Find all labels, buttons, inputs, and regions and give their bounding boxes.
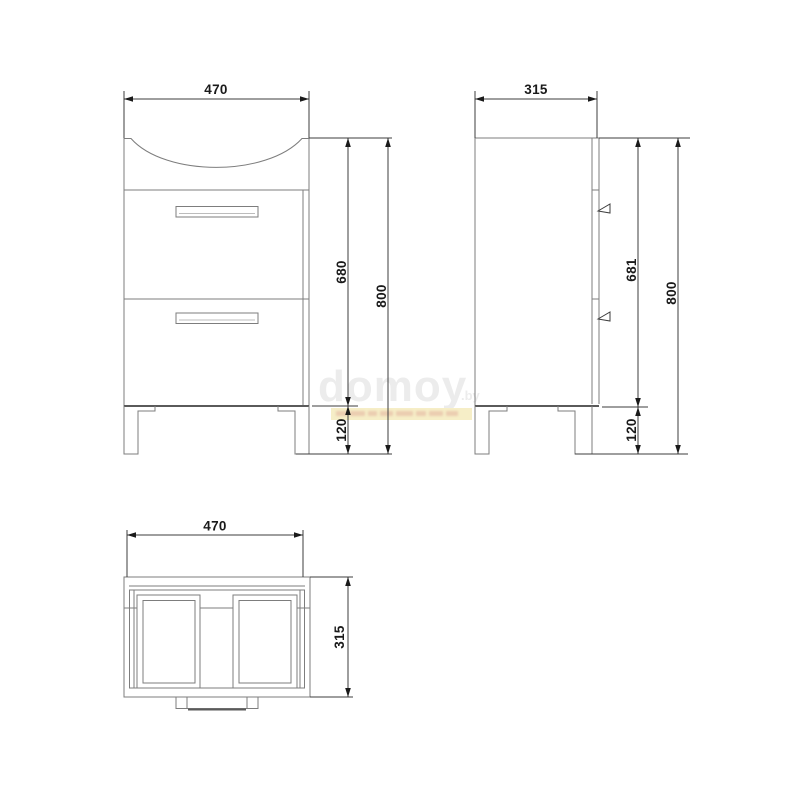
side-total-height-label: 800 [664,281,679,304]
front-width-label: 470 [204,82,227,97]
side-leg-height-label: 120 [624,418,639,441]
top-view: 470 315 [124,519,353,710]
front-body-height-label: 680 [334,260,349,283]
front-drawer1-handle [176,207,258,218]
side-view: 315 681 800 120 [475,82,690,454]
side-depth-label: 315 [524,82,548,97]
drawer2-opening-direction-marker [598,312,610,321]
front-carcass-lines [124,138,309,406]
front-total-height-label: 800 [374,284,389,307]
side-back-leg [558,406,592,454]
front-leg-height-label: 120 [334,418,349,441]
side-dimension-arrows [475,96,681,454]
side-dimension-lines [475,99,678,454]
top-width-label: 470 [203,519,226,534]
front-top-curved-edge [124,139,309,168]
drawer1-opening-direction-marker [598,204,610,213]
technical-drawing-page: domoy .by 470 680 [0,0,800,800]
top-depth-label: 315 [332,625,347,649]
top-left-drawer-frame [137,595,200,688]
side-body-height-label: 681 [624,258,639,282]
top-front-tab [176,697,258,709]
watermark-tagline-blurred-text [336,411,458,416]
vanity-dimension-drawing: domoy .by 470 680 [0,0,800,800]
front-drawer2-handle [176,313,258,324]
side-extension-lines [475,91,690,454]
watermark-suffix: .by [461,388,481,403]
front-left-leg [124,406,155,454]
watermark-brand: domoy [318,362,467,411]
side-front-leg [475,406,507,454]
watermark: domoy .by [318,362,481,420]
side-body-lines [475,138,599,406]
front-right-leg [278,406,309,454]
top-right-drawer-frame [233,595,297,688]
